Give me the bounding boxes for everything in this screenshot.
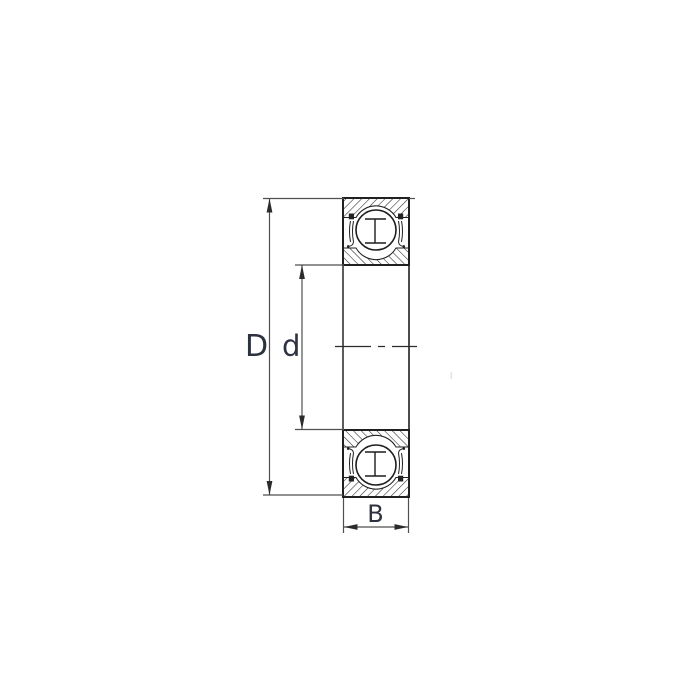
arrow-right-icon	[395, 524, 409, 530]
faint-artifact-mark	[451, 372, 453, 379]
shield-anchor-icon	[349, 214, 354, 220]
bearing-cross-section-drawing: D d B	[0, 0, 700, 700]
dimension-width: B	[344, 498, 409, 533]
shield-anchor-icon	[349, 476, 354, 482]
arrow-up-icon	[267, 199, 273, 213]
shield-anchor-icon	[398, 214, 403, 220]
arrow-up-icon	[299, 265, 305, 279]
bearing-top-section	[343, 198, 409, 265]
ball-top	[356, 210, 396, 250]
dim-label-bore-diameter: d	[282, 329, 300, 363]
dimension-bore-diameter: d	[282, 265, 344, 430]
dim-label-width: B	[367, 500, 383, 528]
arrow-down-icon	[299, 416, 305, 430]
arrow-left-icon	[344, 524, 358, 530]
ball-bottom	[356, 445, 396, 485]
arrow-down-icon	[267, 481, 273, 495]
shield-anchor-icon	[398, 476, 403, 482]
bearing-bottom-section	[343, 430, 409, 497]
drawing-svg: D d B	[0, 0, 700, 700]
dim-label-outer-diameter: D	[245, 329, 268, 364]
